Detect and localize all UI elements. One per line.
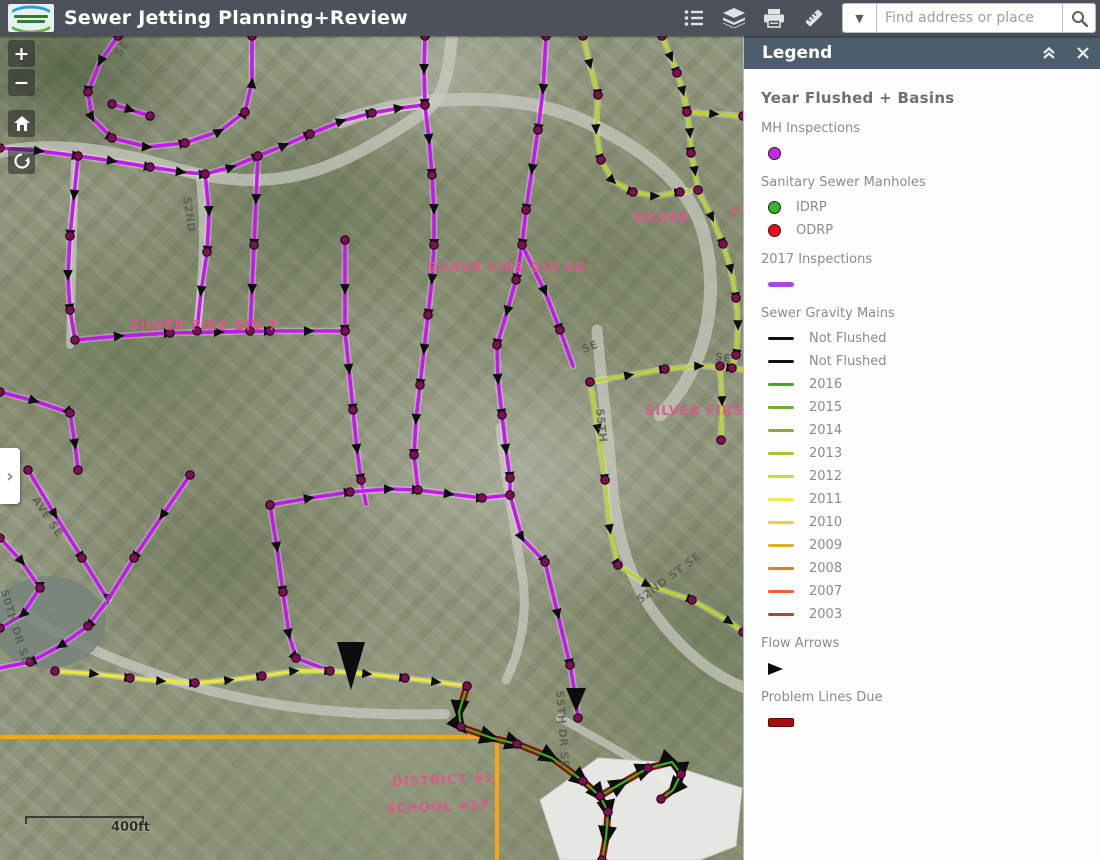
- measure-tool-button[interactable]: [794, 0, 834, 36]
- legend-body: Year Flushed + Basins MH InspectionsSani…: [744, 69, 1100, 734]
- legend-group: Sanitary Sewer ManholesIDRPODRP: [761, 175, 1100, 242]
- legend-swatch-circle: [768, 147, 781, 160]
- legend-group: 2017 Inspections: [761, 252, 1100, 296]
- search-box: ▼: [842, 3, 1096, 33]
- legend-item: 2007: [768, 580, 1100, 603]
- legend-list-icon: [684, 9, 704, 27]
- legend-item: 2003: [768, 603, 1100, 626]
- legend-swatch-line: [768, 406, 794, 409]
- legend-item-label: Not Flushed: [809, 354, 887, 369]
- legend-swatch-line: [768, 429, 794, 432]
- layers-icon: [723, 8, 745, 28]
- locate-button[interactable]: [8, 147, 35, 174]
- flow-arrow-large: [337, 642, 365, 690]
- legend-swatch-line: [768, 337, 794, 340]
- legend-group: Sewer Gravity MainsNot FlushedNot Flushe…: [761, 306, 1100, 626]
- legend-panel: Legend Year Flushed + Basins MH Inspecti…: [743, 36, 1100, 860]
- zoom-out-button[interactable]: −: [8, 69, 35, 96]
- legend-swatch-arrow: [768, 663, 783, 675]
- legend-swatch-circle: [768, 201, 781, 214]
- legend-item: 2009: [768, 534, 1100, 557]
- legend-section-title: Year Flushed + Basins: [761, 89, 1100, 107]
- sewer-main-line: [108, 475, 190, 600]
- legend-item-label: 2007: [809, 584, 842, 599]
- sewer-main-line: [583, 36, 698, 196]
- legend-item: ODRP: [768, 219, 1100, 242]
- scale-bar: 400ft: [25, 812, 175, 838]
- legend-item: Not Flushed: [768, 327, 1100, 350]
- locate-icon: [14, 153, 30, 169]
- legend-item-label: 2015: [809, 400, 842, 415]
- legend-item: [768, 273, 1100, 296]
- legend-item: [768, 657, 1100, 680]
- legend-item: 2016: [768, 373, 1100, 396]
- legend-item: 2014: [768, 419, 1100, 442]
- legend-item-label: 2014: [809, 423, 842, 438]
- legend-item: Not Flushed: [768, 350, 1100, 373]
- legend-layer-label: MH Inspections: [761, 121, 1100, 136]
- layers-tool-button[interactable]: [714, 0, 754, 36]
- header-toolbar: ▼: [674, 0, 1100, 36]
- search-submit-button[interactable]: [1062, 3, 1096, 33]
- legend-swatch-line: [768, 567, 794, 570]
- legend-item-label: Not Flushed: [809, 331, 887, 346]
- print-icon: [764, 9, 784, 28]
- home-extent-button[interactable]: [8, 110, 35, 137]
- legend-item-label: 2009: [809, 538, 842, 553]
- measure-ruler-icon: [803, 7, 825, 29]
- legend-item-label: 2012: [809, 469, 842, 484]
- legend-item: 2015: [768, 396, 1100, 419]
- legend-swatch-line: [768, 544, 794, 547]
- legend-item-label: 2003: [809, 607, 842, 622]
- legend-group: Flow Arrows: [761, 636, 1100, 680]
- legend-swatch-line: [768, 613, 794, 616]
- legend-panel-title: Legend: [762, 43, 1032, 63]
- app-window: SILVER FIRS DIV 7SILVER FIRS DIV 6BSILVE…: [0, 0, 1100, 860]
- legend-swatch-block: [768, 718, 794, 727]
- legend-close-button[interactable]: [1066, 36, 1100, 69]
- legend-item: 2011: [768, 488, 1100, 511]
- legend-item: [768, 711, 1100, 734]
- legend-item-label: 2013: [809, 446, 842, 461]
- sewer-main-line: [112, 104, 150, 116]
- legend-layer-label: Sewer Gravity Mains: [761, 306, 1100, 321]
- legend-item-label: 2008: [809, 561, 842, 576]
- side-panel-expand-tab[interactable]: ›: [0, 448, 20, 504]
- app-header: Sewer Jetting Planning+Review: [0, 0, 1100, 36]
- legend-swatch-line: [768, 498, 794, 501]
- legend-layer-label: Flow Arrows: [761, 636, 1100, 651]
- search-input[interactable]: [876, 3, 1062, 33]
- legend-item-label: 2010: [809, 515, 842, 530]
- legend-layer-label: Problem Lines Due: [761, 690, 1100, 705]
- legend-layer-label: 2017 Inspections: [761, 252, 1100, 267]
- chevron-double-up-icon: [1042, 46, 1056, 60]
- legend-swatch-line: [768, 521, 794, 524]
- district-boundary-line: [0, 737, 497, 860]
- legend-item: IDRP: [768, 196, 1100, 219]
- legend-tool-button[interactable]: [674, 0, 714, 36]
- legend-item-label: 2016: [809, 377, 842, 392]
- home-icon: [14, 116, 30, 131]
- legend-swatch-line: [768, 475, 794, 478]
- legend-swatch-circle: [768, 224, 781, 237]
- legend-item-label: IDRP: [796, 200, 827, 215]
- legend-layer-label: Sanitary Sewer Manholes: [761, 175, 1100, 190]
- legend-panel-header: Legend: [744, 36, 1100, 69]
- legend-item: [768, 142, 1100, 165]
- print-tool-button[interactable]: [754, 0, 794, 36]
- district-logo: [8, 4, 54, 32]
- legend-swatch-line: [768, 360, 794, 363]
- sewer-main-line: [88, 36, 252, 147]
- legend-item: 2008: [768, 557, 1100, 580]
- scale-bar-text: 400ft: [111, 820, 150, 835]
- sewer-main-line: [0, 105, 425, 174]
- sewer-main-line: [720, 366, 722, 440]
- zoom-in-button[interactable]: +: [8, 40, 35, 67]
- legend-item-label: 2011: [809, 492, 842, 507]
- legend-swatch-line: [768, 383, 794, 386]
- page-title: Sewer Jetting Planning+Review: [64, 7, 408, 29]
- legend-swatch-line: [768, 452, 794, 455]
- legend-collapse-button[interactable]: [1032, 36, 1066, 69]
- legend-group: Problem Lines Due: [761, 690, 1100, 734]
- sewer-main-line: [270, 505, 330, 671]
- flow-arrow-large: [566, 688, 586, 712]
- legend-item: 2012: [768, 465, 1100, 488]
- legend-swatch-line: [768, 590, 794, 593]
- legend-item: 2010: [768, 511, 1100, 534]
- legend-item-label: ODRP: [796, 223, 833, 238]
- legend-group: MH Inspections: [761, 121, 1100, 165]
- close-icon: [1077, 47, 1089, 59]
- search-icon: [1071, 10, 1088, 27]
- search-source-dropdown[interactable]: ▼: [842, 3, 876, 33]
- legend-swatch-line-thick: [768, 282, 794, 287]
- legend-item: 2013: [768, 442, 1100, 465]
